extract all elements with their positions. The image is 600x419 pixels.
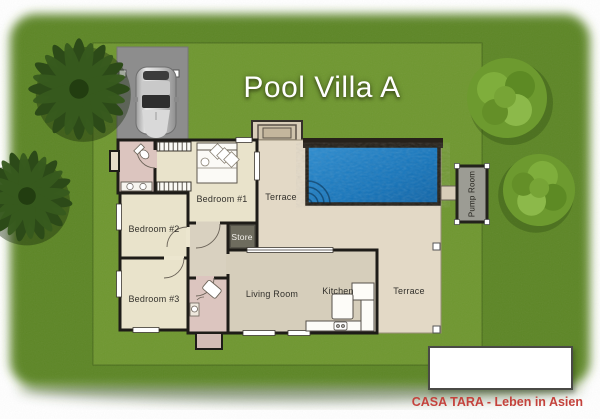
sink	[140, 183, 146, 189]
kitchen-island	[332, 294, 353, 319]
fridge	[352, 283, 374, 300]
wardrobe	[157, 142, 191, 151]
bathroom-2-outdoor-step	[196, 333, 222, 349]
bedroom-3	[120, 258, 188, 330]
terrace-post	[433, 326, 440, 333]
floor-plan-page: Pool Villa A Bedroom #1 Bedroom #2 Bedro…	[0, 0, 600, 419]
terrace-post	[433, 243, 440, 250]
kitchen-sink	[334, 322, 347, 330]
car-top-view	[133, 67, 179, 138]
sink	[127, 183, 133, 189]
vanity-counter	[121, 182, 152, 191]
pump-room-walkway	[441, 186, 457, 200]
store-room-floor	[231, 226, 254, 247]
branding-text: CASA TARA - Leben in Asien	[412, 395, 583, 409]
car-rear-window	[143, 71, 169, 80]
wardrobe	[157, 182, 191, 191]
plan-title: Pool Villa A	[243, 71, 400, 105]
swimming-pool	[303, 138, 443, 204]
hallway	[188, 223, 228, 278]
bedroom-2	[120, 193, 188, 258]
legend-box	[428, 346, 573, 390]
bathroom-1-bay	[110, 151, 119, 171]
car-windshield	[142, 95, 170, 108]
bed	[197, 143, 239, 183]
